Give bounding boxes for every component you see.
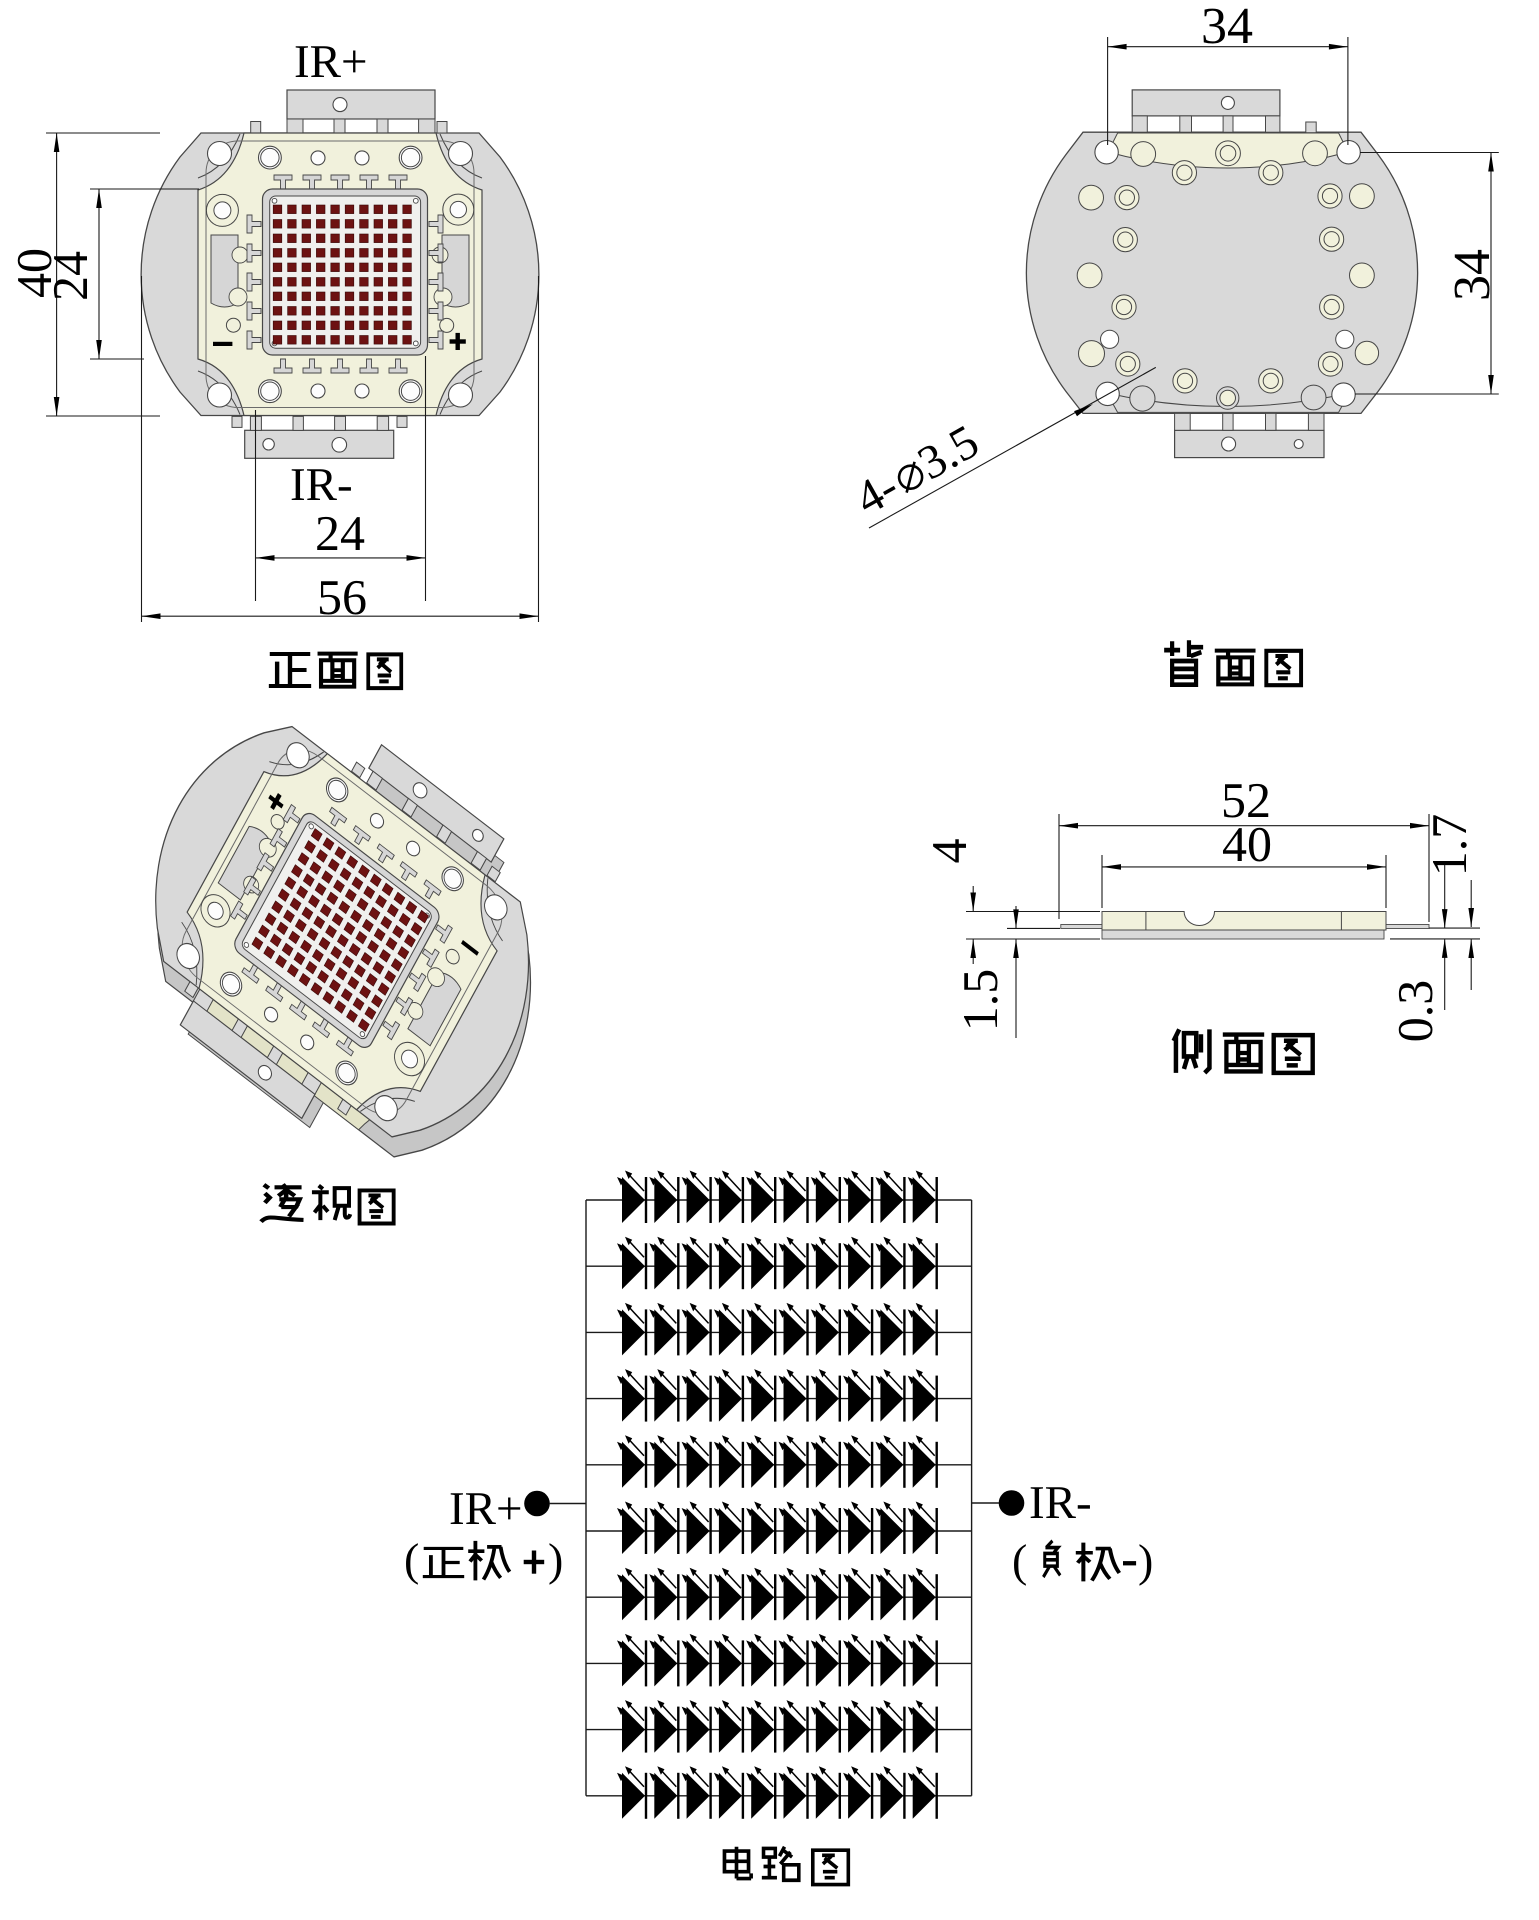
svg-text:40: 40 bbox=[1222, 816, 1272, 872]
svg-text:24: 24 bbox=[315, 505, 365, 561]
svg-text:56: 56 bbox=[317, 569, 367, 625]
svg-text:IR-: IR- bbox=[290, 459, 353, 511]
svg-text:IR-: IR- bbox=[1029, 1477, 1092, 1529]
svg-text:): ) bbox=[1138, 1535, 1153, 1586]
svg-text:34: 34 bbox=[1444, 249, 1501, 301]
svg-text:): ) bbox=[548, 1534, 563, 1585]
svg-text:1.5: 1.5 bbox=[952, 969, 1008, 1032]
svg-text:4: 4 bbox=[921, 839, 977, 864]
svg-text:(: ( bbox=[1012, 1535, 1027, 1586]
svg-text:IR+: IR+ bbox=[449, 1483, 523, 1535]
svg-text:1.7: 1.7 bbox=[1421, 814, 1477, 877]
svg-text:24: 24 bbox=[42, 251, 98, 301]
svg-text:0.3: 0.3 bbox=[1387, 980, 1443, 1043]
svg-text:34: 34 bbox=[1201, 0, 1253, 55]
svg-text:IR+: IR+ bbox=[294, 36, 368, 88]
svg-text:(: ( bbox=[404, 1534, 419, 1585]
